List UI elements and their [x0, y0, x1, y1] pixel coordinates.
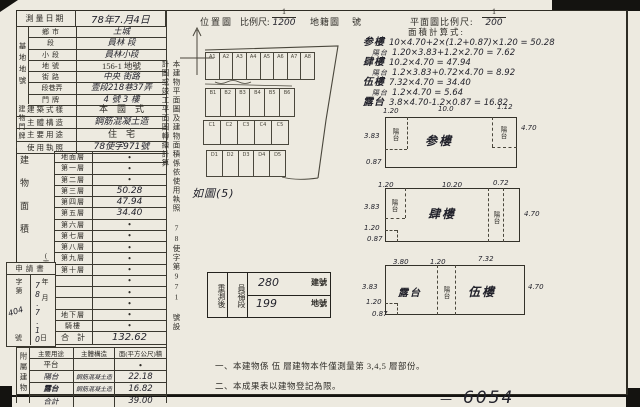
survey-date-value-cell: 78年7.月4日: [76, 10, 166, 27]
building-rows: 建築式樣 本 國 式主體構造 鋼筋混凝土造主要用途 住 宅使用執照 78使字97…: [16, 104, 166, 154]
survey-date-label: 測量日期: [26, 13, 66, 24]
parcel-cell: B3: [236, 89, 251, 116]
plan-scale-fraction: 1 200: [482, 8, 506, 28]
resurvey-building-no: 280: [258, 276, 279, 289]
calc-line: 参樓10×4.70+2×(1.2+0.87)×1.20 = 50.28: [363, 38, 613, 49]
parcel-cell: A7: [288, 53, 302, 79]
parcel-row-c: C1C2C3C4C5: [203, 120, 289, 145]
plan4f-dim-notchh: 0.87: [367, 235, 383, 243]
parcel-row-d: D1D2D3D4D5: [206, 150, 286, 177]
plan4f-dim-top: 10.20: [442, 181, 462, 189]
annex-row: 露台 鋼筋混凝土造 16.82: [29, 383, 166, 395]
plan3f-dim-topleft: 1.20: [383, 107, 399, 115]
floor-area-row: 第四層 47.94: [54, 197, 166, 208]
area-spine-label: 建物面積: [20, 155, 31, 255]
page-number-dash: —: [440, 392, 452, 406]
plan3f-dim-topright: 1.12: [497, 103, 513, 111]
parcel-cell: C2: [221, 121, 238, 144]
plan5f-dim-notchh: 0.87: [372, 310, 388, 318]
parcel-cell: A4: [247, 53, 261, 79]
parcel-cell: D4: [254, 151, 270, 176]
survey-date-label-cell: 測量日期: [16, 10, 76, 27]
resurvey-label: 重測後: [208, 273, 228, 317]
plan3f-dim-left: 3.83: [364, 132, 380, 140]
floor-area-row: 第五層 34.40: [54, 208, 166, 219]
calc-line: 伍樓7.32×4.70 = 34.40: [363, 78, 613, 89]
plan5f-dim-topmid: 1.20: [430, 258, 446, 266]
application-no-suffix: 號: [15, 333, 22, 343]
floor-area-row: •: [54, 287, 166, 298]
area-calc-block: 面積計算式: 参樓10×4.70+2×(1.2+0.87)×1.20 = 50.…: [363, 26, 613, 109]
floor-area-row: 第三層 50.28: [54, 186, 166, 197]
site-rows: 鄉市 土城段 員林 段小段 員林小段地號 156-1 地號街路 中央 街路段巷弄…: [28, 27, 166, 106]
parcel-cell: C3: [238, 121, 255, 144]
site-row: 段 員林 段: [28, 38, 166, 49]
site-row: 街路 中央 街路: [28, 72, 166, 83]
note-1: 一、本建物係 伍 層建物本件僅測量第 3,4,5 層部份。: [215, 360, 425, 372]
calc-line: 陽台1.2×3.83+0.72×4.70 = 8.92: [363, 69, 613, 79]
plan4f-dim-topright: 0.72: [493, 179, 509, 187]
site-row: 地號 156-1 地號: [28, 61, 166, 72]
floor-area-row: 第七層 •: [54, 231, 166, 242]
scan-mark-bottomright: [626, 388, 640, 407]
parcel-cell: D5: [270, 151, 285, 176]
annex-row: 平台 •: [29, 359, 166, 371]
plan5f-name: 伍樓: [468, 283, 496, 300]
resurvey-building-no-label: 建號: [311, 277, 327, 288]
note-2: 二、本成果表以建物登記為限。: [215, 380, 341, 392]
application-no-value: 404: [7, 305, 24, 318]
plan4f-right-balcony-label: 陽台: [492, 205, 499, 229]
area-total-value: 132.62: [93, 332, 166, 343]
sheet-no-label: 號: [352, 15, 361, 28]
parcel-cell: D1: [207, 151, 223, 176]
floor-area-row: 地面層 •: [54, 152, 166, 163]
floor-area-row: •: [54, 298, 166, 309]
parcel-cell: B2: [221, 89, 236, 116]
plan3f-name: 参樓: [425, 132, 453, 149]
plan3f-right-balcony-label: 陽台: [499, 120, 506, 144]
annex-table: 主要用途主體構造面(平方公尺)積平台 •陽台 鋼筋混凝土造 22.18露台 鋼筋…: [29, 347, 166, 407]
plan5f-dim-right: 4.70: [528, 283, 544, 291]
parcel-cell: A2: [220, 53, 234, 79]
plan4f-left-balcony-label: 陽台: [390, 193, 397, 217]
floor-area-row: 地下層 •: [54, 310, 166, 321]
site-row: 小段 員林小段: [28, 50, 166, 61]
annex-row: 合計 39.00: [29, 396, 166, 407]
site-spine-label: 基地地號: [17, 32, 28, 98]
parcel-row-b: B1B2B3B4B5B6: [205, 88, 295, 117]
calc-line: 陽台1.2×4.70 = 5.64: [363, 89, 613, 99]
floor-area-row: 第二層 •: [54, 175, 166, 186]
survey-form-page: 測量日期 78年7.月4日 位置圖 比例尺: 1 1200 地籍圖 號 平面圖比…: [0, 0, 640, 407]
parcel-row-a: A1A2A3A4A5A6A7A8: [205, 52, 315, 80]
map-caption: 如圖(5): [192, 185, 235, 201]
parcel-cell: A3: [233, 53, 247, 79]
parcel-cell: A6: [274, 53, 288, 79]
parcel-cell: C4: [255, 121, 272, 144]
plan5f-dim-topleft: 3.80: [393, 258, 409, 266]
floor-area-row: •: [54, 276, 166, 287]
parcel-cell: D2: [223, 151, 239, 176]
parcel-cell: D3: [239, 151, 255, 176]
plan5f-dim-notchw: 1.20: [366, 298, 382, 306]
annex-row: 陽台 鋼筋混凝土造 22.18: [29, 371, 166, 383]
plan5f-balcony-label: 陽台: [442, 280, 449, 304]
parcel-cell: B6: [280, 89, 294, 116]
annex-spine-label: 附屬建物: [19, 352, 29, 402]
parcel-cell: B4: [250, 89, 265, 116]
plan4f-dim-topleft: 1.20: [378, 181, 394, 189]
site-row: 段巷弄 壹段218巷37弄: [28, 83, 166, 94]
plan4f-name: 肆樓: [428, 205, 456, 222]
plan4f-dim-right: 4.70: [524, 210, 540, 218]
page-number: 6054: [463, 388, 514, 407]
floor-area-row: 第九層 •: [54, 253, 166, 264]
area-calc-title: 面積計算式:: [408, 26, 613, 38]
parcel-cell: C1: [204, 121, 221, 144]
plan5f-terrace-label: 露台: [398, 284, 422, 299]
plan5f-dim-topright: 7.32: [478, 255, 494, 263]
floor-area-table: 地面層 •第一層 •第二層 •第三層 50.28第四層 47.94第五層 34.…: [54, 151, 166, 332]
area-total-row: 合 計 132.62: [54, 331, 166, 345]
calc-line: 陽台1.20×3.83+1.2×2.70 = 7.62: [363, 49, 613, 59]
parcel-cell: A8: [301, 53, 314, 79]
application-box: 申請書 字第 404 號 年月 78.7.10 日: [6, 262, 56, 347]
calc-line: 露台3.8×4.70-1.2×0.87 = 16.82: [363, 98, 613, 109]
area-total-label: 合 計: [54, 331, 93, 344]
survey-date-value: 78年7.月4日: [91, 11, 150, 26]
calc-line: 肆樓10.2×4.70 = 47.94: [363, 58, 613, 69]
plan4f-dim-notchw: 1.20: [364, 224, 380, 232]
site-row: 鄉市 土城: [28, 27, 166, 38]
plan5f-dim-left: 3.83: [362, 283, 378, 291]
plan3f-dim-right: 4.70: [521, 124, 537, 132]
floor-area-row: 第六層 •: [54, 220, 166, 231]
plan4f-dim-left: 3.83: [364, 203, 380, 211]
resurvey-land-no: 199: [256, 297, 277, 310]
parcel-cell: A5: [261, 53, 275, 79]
resurvey-stamp-box: 重測後 員福段 280 建號 199 地號: [207, 272, 331, 318]
floor-area-row: 第十層 •: [54, 265, 166, 276]
building-row: 主體構造 鋼筋混凝土造: [16, 117, 166, 130]
plan3f-dim-leftlower: 0.87: [366, 158, 382, 166]
parcel-cell: B5: [265, 89, 280, 116]
resurvey-land-no-label: 地號: [311, 298, 327, 309]
floor-area-row: 第一層 •: [54, 163, 166, 174]
parcel-cell: B1: [206, 89, 221, 116]
parcel-cell: C5: [272, 121, 288, 144]
parcel-cell: A1: [206, 53, 220, 79]
application-title: 申請書: [7, 263, 55, 275]
building-row: 建築式樣 本 國 式: [16, 104, 166, 117]
application-date-suffix: 日: [40, 333, 47, 343]
annex-header-row: 主要用途主體構造面(平方公尺)積: [29, 347, 166, 359]
building-row: 主要用途 住 宅: [16, 129, 166, 142]
plan3f-left-balcony-label: 陽台: [391, 122, 398, 146]
floor-area-row: 第八層 •: [54, 242, 166, 253]
plan3f-dim-top: 10.0: [438, 105, 454, 113]
resurvey-section: 員福段: [228, 273, 248, 317]
application-no-label: 字第: [14, 278, 24, 296]
